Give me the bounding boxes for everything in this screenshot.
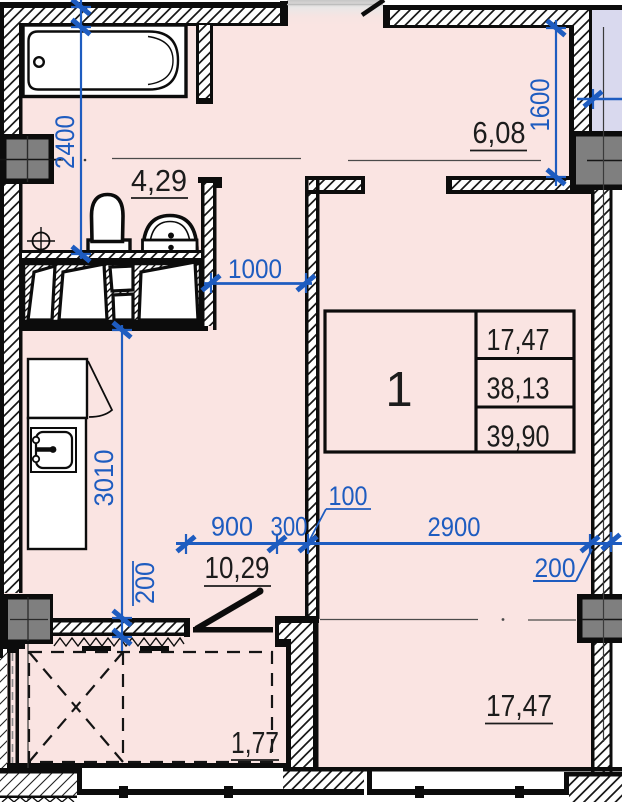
svg-text:2900: 2900 [428, 512, 481, 542]
svg-text:10,29: 10,29 [205, 550, 270, 585]
svg-text:900: 900 [211, 512, 253, 542]
svg-text:1600: 1600 [525, 79, 555, 132]
svg-text:100: 100 [329, 481, 368, 511]
svg-text:3010: 3010 [89, 450, 119, 507]
svg-text:38,13: 38,13 [487, 371, 550, 406]
svg-text:300: 300 [271, 512, 308, 542]
svg-text:17,47: 17,47 [486, 688, 552, 723]
svg-text:1,77: 1,77 [231, 725, 279, 760]
svg-text:4,29: 4,29 [131, 163, 187, 198]
svg-text:200: 200 [535, 553, 576, 583]
svg-text:200: 200 [130, 562, 160, 604]
svg-text:1000: 1000 [228, 254, 282, 284]
svg-text:6,08: 6,08 [473, 115, 526, 150]
svg-text:39,90: 39,90 [487, 419, 550, 454]
svg-text:17,47: 17,47 [487, 322, 550, 357]
svg-text:1: 1 [385, 363, 412, 417]
svg-text:2400: 2400 [50, 115, 80, 169]
